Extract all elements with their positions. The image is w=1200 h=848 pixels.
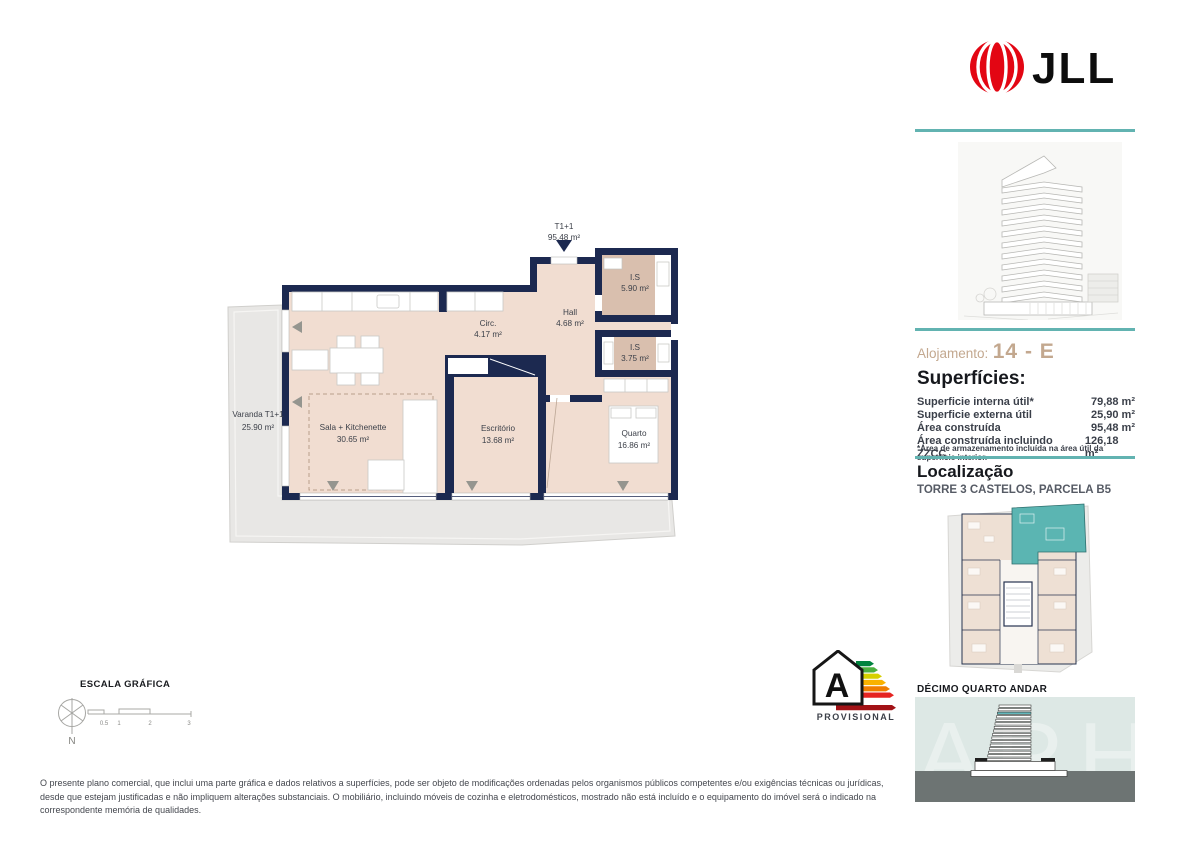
energy-rating-icon: A — [812, 650, 904, 712]
key-plan — [942, 502, 1094, 677]
svg-text:Circ.: Circ. — [480, 319, 497, 328]
jll-logo-mark-icon — [970, 40, 1024, 94]
svg-text:2: 2 — [148, 721, 152, 727]
svg-text:Sala + Kitchenette: Sala + Kitchenette — [320, 423, 387, 432]
areas-footnote: *Área de armazenamento incluída na área … — [917, 444, 1137, 462]
svg-text:I.S: I.S — [630, 343, 641, 352]
svg-text:4.68 m²: 4.68 m² — [556, 319, 584, 328]
unit-id-value: 14 - E — [993, 340, 1055, 363]
svg-text:Hall: Hall — [563, 308, 577, 317]
jll-logo: JLL — [968, 36, 1118, 98]
superficies-title: Superfícies: — [917, 368, 1026, 390]
unit-area-label: 95.48 m² — [548, 233, 581, 242]
svg-text:4.17 m²: 4.17 m² — [474, 330, 502, 339]
table-row: Superficie externa útil 25,90 m² — [917, 409, 1135, 422]
unit-type-label: T1+1 — [555, 222, 574, 231]
svg-text:13.68 m²: 13.68 m² — [482, 436, 515, 445]
svg-text:I.S: I.S — [630, 273, 641, 282]
scale-title: ESCALA GRÁFICA — [80, 679, 170, 690]
svg-text:Escritório: Escritório — [481, 424, 516, 433]
svg-text:0.5: 0.5 — [100, 721, 109, 727]
tower-rendering — [958, 142, 1122, 320]
elevator-core — [1004, 582, 1032, 626]
svg-text:16.86 m²: 16.86 m² — [618, 441, 651, 450]
floor-label: DÉCIMO QUARTO ANDAR — [917, 684, 1047, 695]
svg-text:1: 1 — [117, 721, 121, 727]
svg-text:Varanda T1+1: Varanda T1+1 — [232, 410, 284, 419]
svg-text:3: 3 — [187, 721, 191, 727]
divider-mid-2 — [915, 456, 1135, 459]
table-row: Área construída 95,48 m² — [917, 422, 1135, 435]
floor-plan: T1+1 95.48 m² I.S 5.90 m² Hall 4.68 m² C… — [220, 200, 690, 560]
svg-text:25.90 m²: 25.90 m² — [242, 423, 275, 432]
scale-bar: 0.5 1 2 3 — [86, 704, 196, 732]
svg-text:Quarto: Quarto — [621, 429, 646, 438]
svg-text:5.90 m²: 5.90 m² — [621, 284, 649, 293]
svg-text:30.65 m²: 30.65 m² — [337, 435, 370, 444]
energy-rating-letter: A — [825, 667, 850, 705]
localizacao-subtitle: TORRE 3 CASTELOS, PARCELA B5 — [917, 484, 1111, 496]
jll-logo-text: JLL — [1032, 44, 1116, 93]
svg-text:3.75 m²: 3.75 m² — [621, 354, 649, 363]
localizacao-title: Localização — [917, 462, 1013, 482]
north-label: N — [68, 736, 75, 746]
elevation-diagram: ARH — [915, 697, 1135, 802]
unit-id: Alojamento: 14 - E — [917, 340, 1135, 364]
legal-disclaimer: O presente plano comercial, que inclui u… — [40, 777, 888, 818]
unit-id-label: Alojamento: — [917, 346, 988, 361]
brochure-page: T1+1 95.48 m² I.S 5.90 m² Hall 4.68 m² C… — [0, 0, 1200, 848]
divider-top — [915, 129, 1135, 132]
table-row: Superficie interna útil* 79,88 m² — [917, 396, 1135, 409]
energy-status-label: PROVISIONAL — [796, 712, 916, 722]
divider-mid-1 — [915, 328, 1135, 331]
